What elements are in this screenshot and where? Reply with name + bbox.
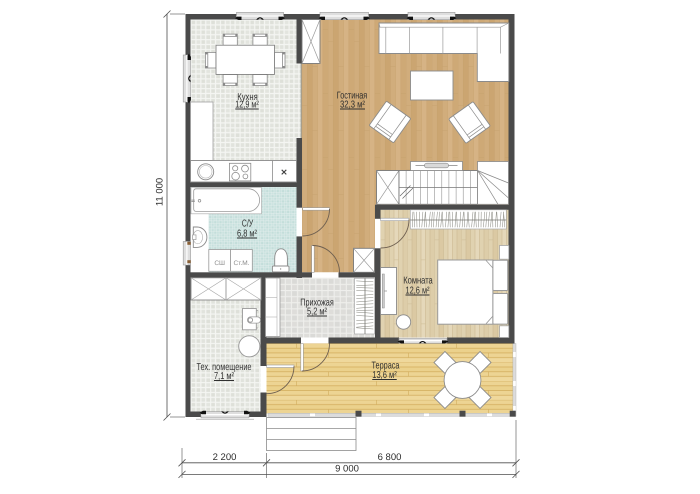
svg-text:СШ: СШ <box>214 260 225 267</box>
svg-text:12,6 м²: 12,6 м² <box>406 286 430 297</box>
svg-text:Ст.М.: Ст.М. <box>234 260 250 267</box>
svg-text:5,2 м²: 5,2 м² <box>307 307 327 318</box>
svg-text:12,9 м²: 12,9 м² <box>235 100 259 111</box>
svg-text:6,8 м²: 6,8 м² <box>237 229 257 240</box>
svg-text:11 000: 11 000 <box>155 178 166 206</box>
svg-text:9 000: 9 000 <box>335 464 359 475</box>
svg-text:6 800: 6 800 <box>378 452 402 463</box>
svg-text:13,6 м²: 13,6 м² <box>372 370 397 381</box>
svg-text:2 200: 2 200 <box>213 452 237 463</box>
svg-text:32,3 м²: 32,3 м² <box>340 100 366 111</box>
svg-text:7,1 м²: 7,1 м² <box>214 371 234 382</box>
